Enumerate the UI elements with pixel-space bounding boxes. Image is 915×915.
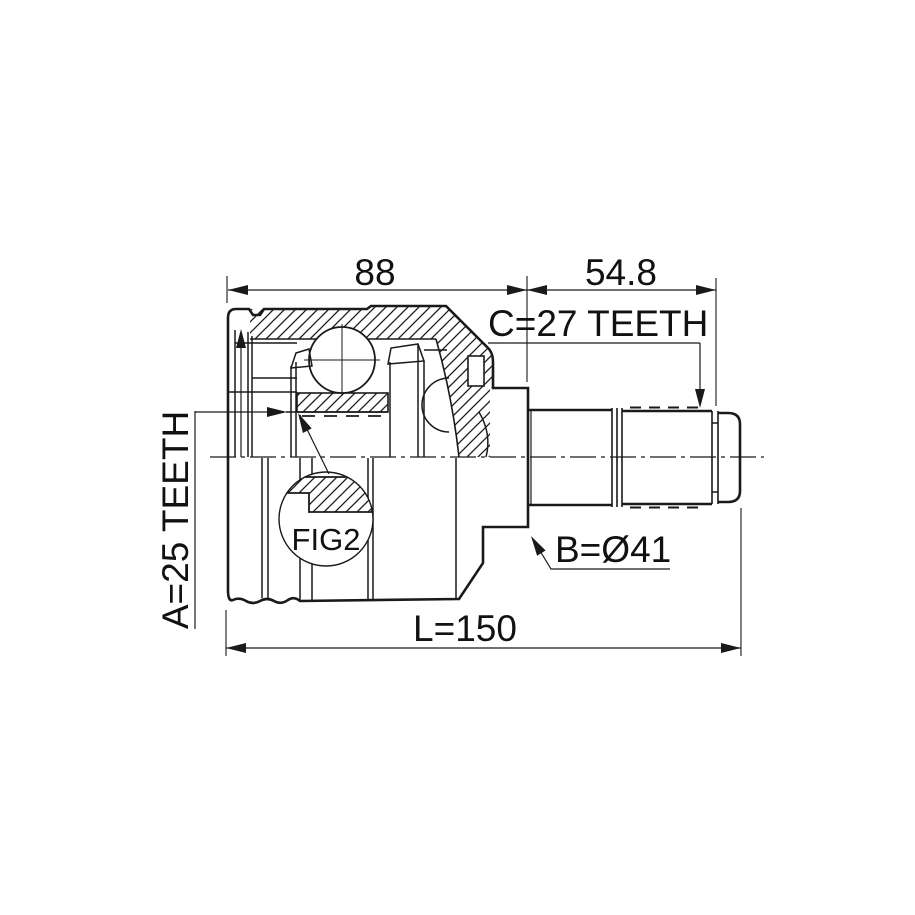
b-dia-41-text: B=Ø41 bbox=[555, 529, 671, 570]
snap-ring-groove bbox=[468, 356, 484, 386]
label-c-27-teeth: C=27 TEETH bbox=[488, 303, 708, 408]
down-arrowhead bbox=[695, 389, 705, 408]
dim-88-label: 88 bbox=[354, 252, 395, 293]
dim-54-8-label: 54.8 bbox=[585, 252, 657, 293]
right-arrowhead bbox=[267, 407, 287, 417]
fig2-detail-label: FIG2 bbox=[292, 522, 361, 557]
label-b-dia-41: B=Ø41 bbox=[531, 529, 671, 570]
boot-groove-leader bbox=[236, 329, 246, 457]
up-arrowhead bbox=[236, 329, 246, 348]
right-arrowhead bbox=[507, 285, 527, 295]
dim-l-150-label: L=150 bbox=[413, 608, 517, 649]
right-arrowhead bbox=[696, 285, 716, 295]
leader-line bbox=[195, 411, 268, 629]
left-arrowhead bbox=[228, 285, 248, 295]
up-left-arrowhead bbox=[531, 536, 546, 556]
left-arrowhead bbox=[226, 643, 246, 653]
a-25-teeth-text: A=25 TEETH bbox=[155, 411, 196, 629]
c-27-teeth-text: C=27 TEETH bbox=[488, 303, 708, 344]
right-arrowhead bbox=[721, 643, 741, 653]
cv-joint-technical-drawing: FIG2 88 54.8 C=27 TEETH A=25 TEETH B=Ø41 bbox=[0, 0, 915, 915]
section-hatching bbox=[250, 306, 493, 457]
label-a-25-teeth: A=25 TEETH bbox=[155, 407, 287, 629]
ball-track-arc bbox=[422, 378, 449, 432]
leader-line bbox=[488, 343, 700, 390]
left-arrowhead bbox=[527, 285, 547, 295]
technical-drawing-page: FIG2 88 54.8 C=27 TEETH A=25 TEETH B=Ø41 bbox=[0, 0, 915, 915]
